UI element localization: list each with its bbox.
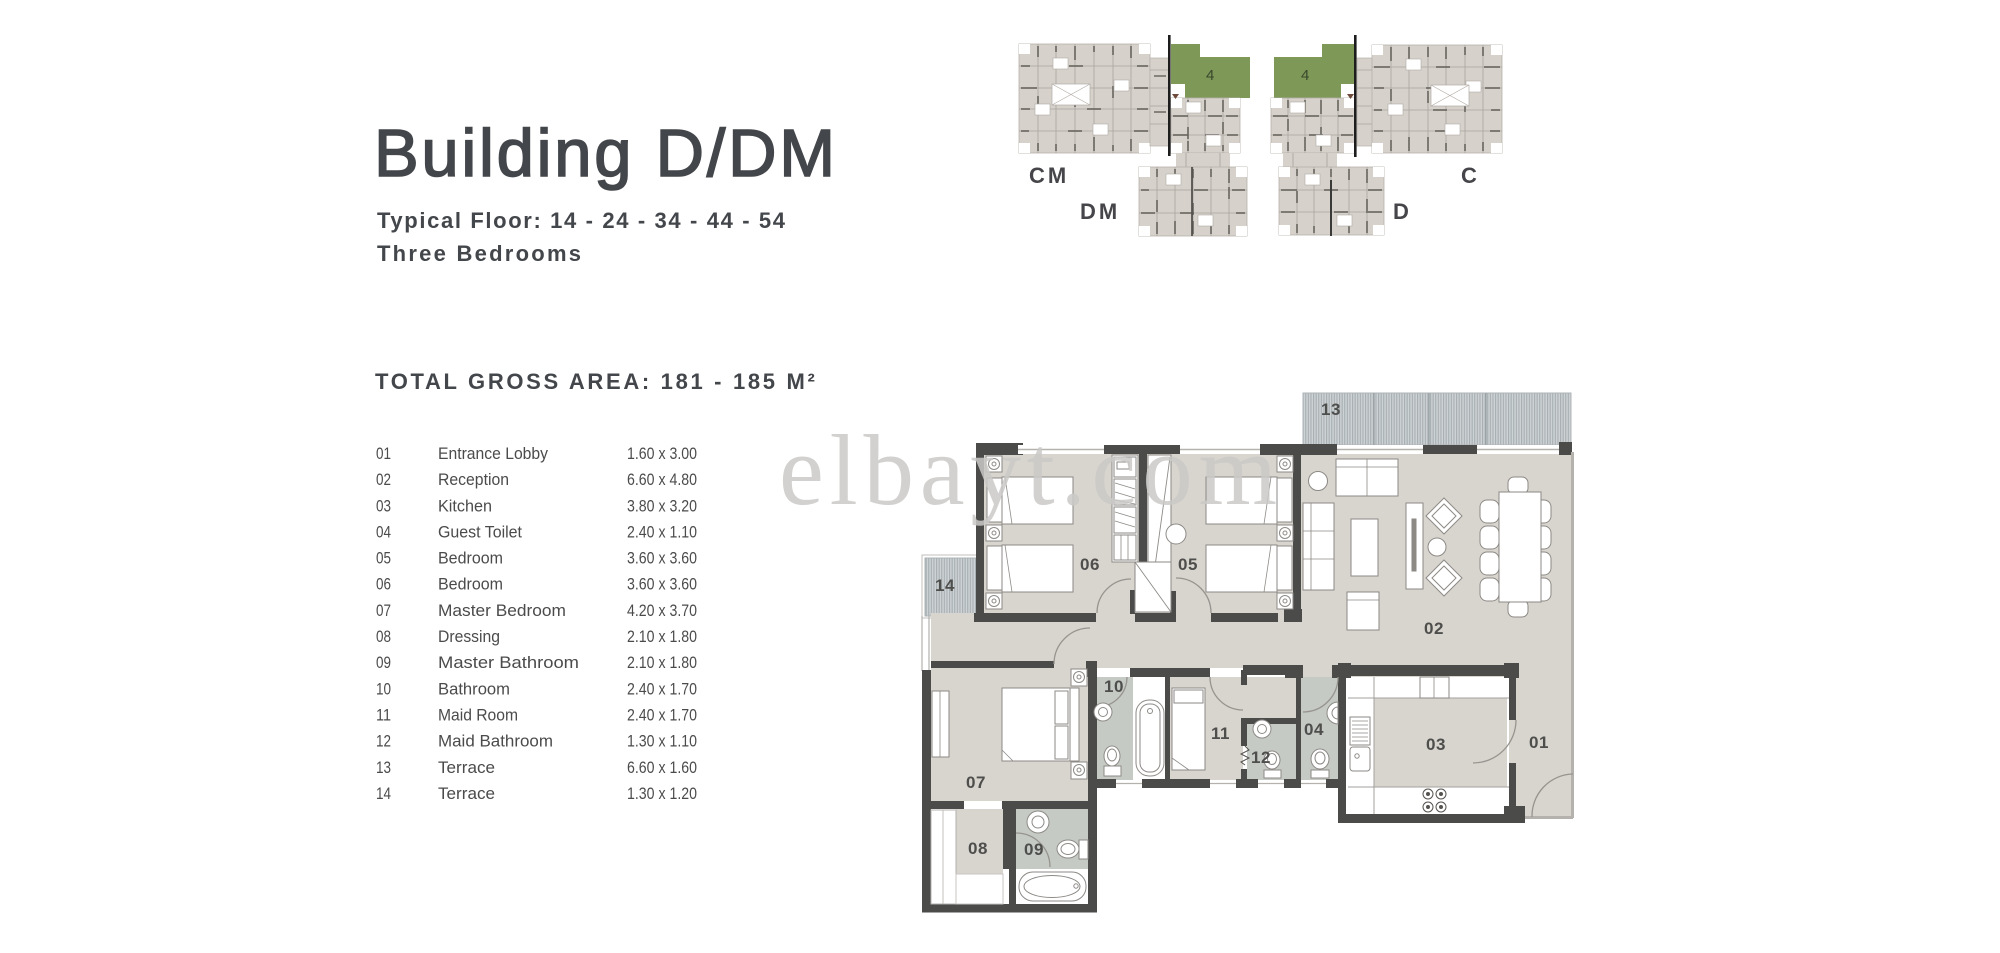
svg-text:TOTAL GROSS AREA: 181 - 185 M²: TOTAL GROSS AREA: 181 - 185 M² [375,369,817,394]
svg-text:2.40 x 1.10: 2.40 x 1.10 [627,522,697,541]
svg-text:09: 09 [376,653,391,672]
svg-text:Bedroom: Bedroom [438,575,503,594]
svg-text:6.60 x 1.60: 6.60 x 1.60 [627,758,697,777]
svg-text:2.10 x 1.80: 2.10 x 1.80 [627,653,697,672]
svg-text:03: 03 [1426,735,1446,754]
svg-text:08: 08 [376,627,391,646]
svg-text:05: 05 [376,549,391,568]
svg-text:01: 01 [1529,733,1549,752]
svg-text:Reception: Reception [438,470,509,489]
svg-text:Guest Toilet: Guest Toilet [438,522,522,541]
svg-text:Kitchen: Kitchen [438,496,492,515]
svg-text:Dressing: Dressing [438,627,500,646]
svg-text:1.30 x 1.20: 1.30 x 1.20 [627,784,697,803]
svg-text:14: 14 [376,784,391,803]
svg-text:3.60 x 3.60: 3.60 x 3.60 [627,575,697,594]
svg-text:Master Bedroom: Master Bedroom [438,601,566,620]
svg-text:Building D/DM: Building D/DM [374,116,835,191]
svg-text:3.80 x 3.20: 3.80 x 3.20 [627,496,697,515]
svg-text:1.60 x 3.00: 1.60 x 3.00 [627,444,697,463]
svg-text:08: 08 [968,839,988,858]
svg-text:09: 09 [1024,840,1044,859]
svg-text:D: D [1393,199,1409,224]
svg-text:4.20 x 3.70: 4.20 x 3.70 [627,601,697,620]
svg-text:elbayt.com: elbayt.com [779,414,1277,526]
svg-text:Master Bathroom: Master Bathroom [438,653,579,672]
svg-text:07: 07 [966,773,986,792]
svg-text:02: 02 [1424,619,1444,638]
svg-text:3.60 x 3.60: 3.60 x 3.60 [627,549,697,568]
svg-text:Maid Room: Maid Room [438,706,518,725]
svg-text:07: 07 [376,601,391,620]
svg-text:06: 06 [376,575,391,594]
svg-text:4: 4 [1206,67,1214,84]
svg-text:2.40 x 1.70: 2.40 x 1.70 [627,679,697,698]
svg-text:12: 12 [376,732,391,751]
svg-text:6.60 x 4.80: 6.60 x 4.80 [627,470,697,489]
svg-text:05: 05 [1178,555,1198,574]
svg-text:Maid Bathroom: Maid Bathroom [438,732,553,751]
svg-text:C: C [1461,163,1477,188]
svg-text:Bathroom: Bathroom [438,679,510,698]
svg-text:2.40 x 1.70: 2.40 x 1.70 [627,706,697,725]
svg-text:Typical Floor: 14 - 24 - 34 -: Typical Floor: 14 - 24 - 34 - 44 - 54 [377,208,786,233]
svg-text:1.30 x 1.10: 1.30 x 1.10 [627,732,697,751]
svg-text:2.10 x 1.80: 2.10 x 1.80 [627,627,697,646]
svg-text:Entrance Lobby: Entrance Lobby [438,444,548,463]
svg-text:10: 10 [1104,677,1124,696]
svg-text:02: 02 [376,470,391,489]
svg-text:4: 4 [1301,67,1309,84]
svg-text:DM: DM [1080,199,1120,224]
svg-text:03: 03 [376,496,391,515]
svg-text:11: 11 [376,706,391,725]
svg-text:Three Bedrooms: Three Bedrooms [377,241,581,266]
svg-text:Terrace: Terrace [438,784,495,803]
svg-text:04: 04 [1304,720,1324,739]
svg-text:04: 04 [376,522,391,541]
svg-text:CM: CM [1029,163,1069,188]
svg-text:13: 13 [1321,400,1341,419]
svg-text:06: 06 [1080,555,1100,574]
svg-text:12: 12 [1251,748,1271,767]
svg-text:13: 13 [376,758,391,777]
svg-text:11: 11 [1211,724,1230,743]
svg-text:01: 01 [376,444,391,463]
svg-text:14: 14 [935,576,955,595]
svg-text:Bedroom: Bedroom [438,549,503,568]
svg-text:10: 10 [376,679,391,698]
svg-text:Terrace: Terrace [438,758,495,777]
